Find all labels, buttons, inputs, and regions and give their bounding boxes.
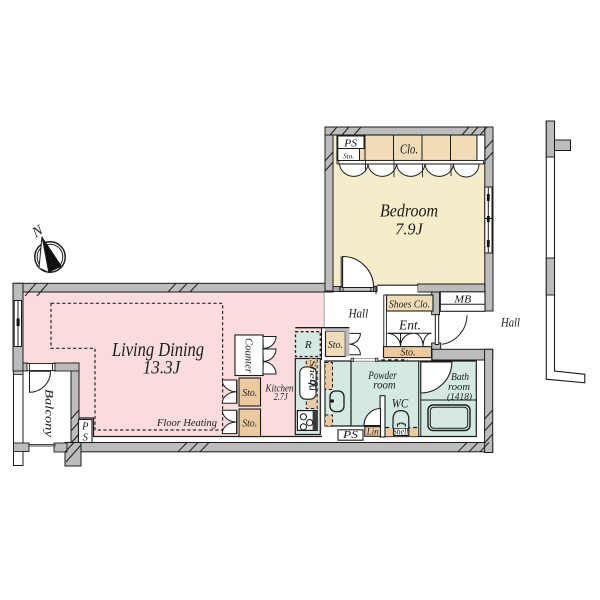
svg-text:S: S xyxy=(83,433,89,444)
svg-text:13.3J: 13.3J xyxy=(143,358,182,379)
svg-text:Shoes Clo.: Shoes Clo. xyxy=(389,298,430,310)
svg-text:R: R xyxy=(304,339,312,351)
svg-text:Ent.: Ent. xyxy=(398,319,421,334)
svg-text:Hall: Hall xyxy=(348,306,369,321)
svg-text:Counter: Counter xyxy=(242,338,253,374)
svg-text:P: P xyxy=(81,422,89,433)
svg-text:Sto.: Sto. xyxy=(242,418,257,429)
svg-text:room: room xyxy=(448,382,470,393)
svg-text:Bedroom: Bedroom xyxy=(380,201,438,221)
svg-text:Shelf: Shelf xyxy=(308,360,318,388)
svg-text:Hall: Hall xyxy=(500,316,520,330)
svg-text:2.7J: 2.7J xyxy=(274,392,288,403)
svg-text:PS: PS xyxy=(343,138,357,149)
svg-text:Sto.: Sto. xyxy=(343,151,354,160)
svg-text:(1418): (1418) xyxy=(447,392,472,403)
svg-text:Sto.: Sto. xyxy=(328,340,343,351)
svg-text:room: room xyxy=(373,377,396,391)
svg-text:Floor Heating: Floor Heating xyxy=(156,417,217,429)
svg-text:Lin: Lin xyxy=(366,427,379,437)
svg-text:Sto.: Sto. xyxy=(401,348,416,359)
svg-text:Clo.: Clo. xyxy=(400,141,418,156)
svg-text:PS: PS xyxy=(342,430,358,441)
svg-text:Shelf: Shelf xyxy=(393,427,410,437)
svg-text:Sto.: Sto. xyxy=(242,388,257,399)
svg-text:7.9J: 7.9J xyxy=(395,220,424,239)
svg-text:Balcony: Balcony xyxy=(43,389,57,438)
svg-text:WC: WC xyxy=(392,395,409,410)
svg-text:MB: MB xyxy=(453,294,471,306)
